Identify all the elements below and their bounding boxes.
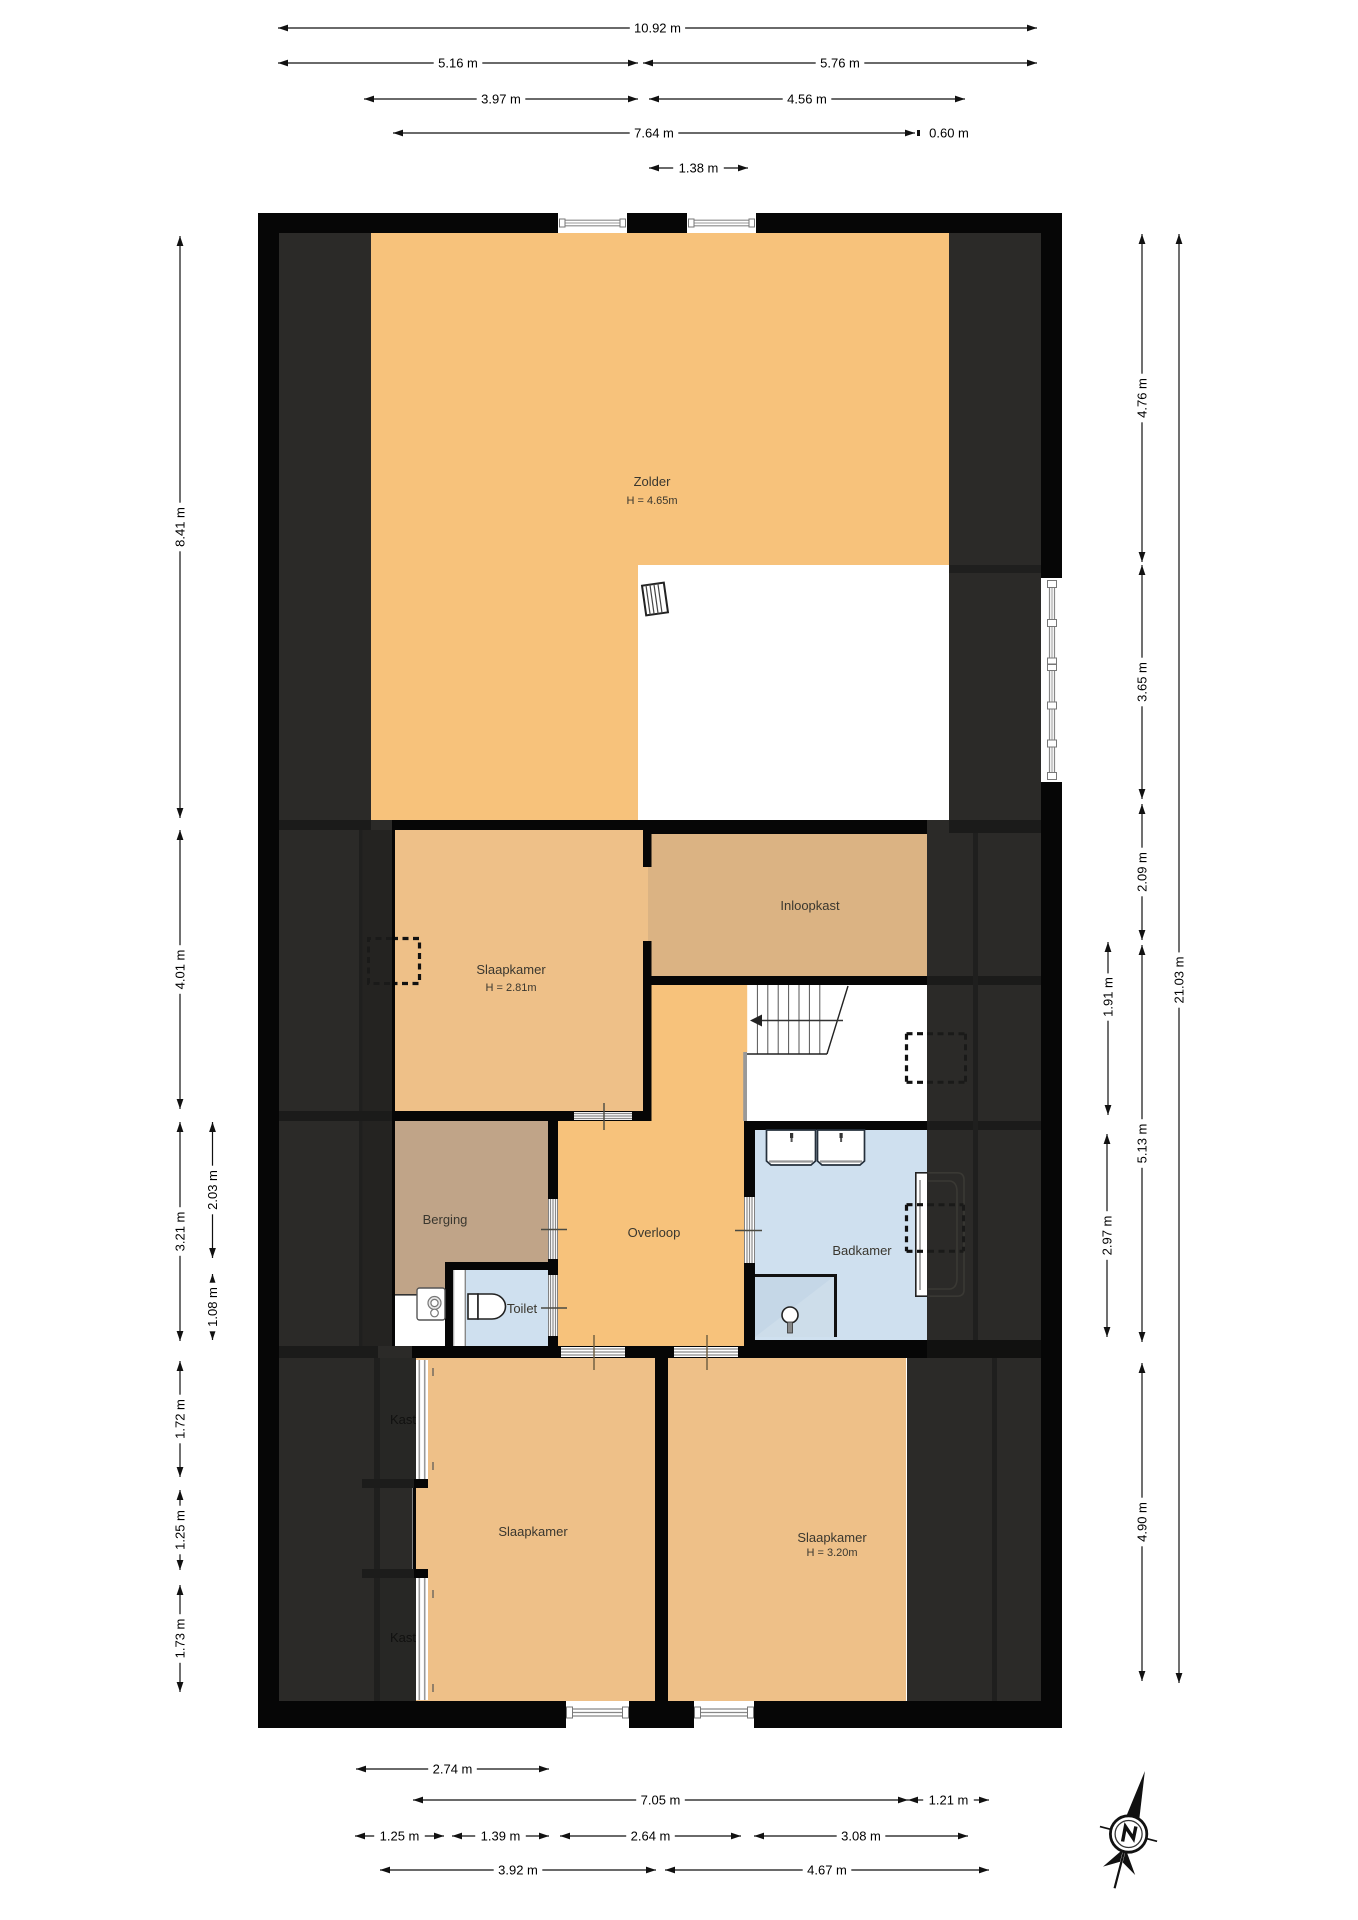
svg-text:H = 2.81m: H = 2.81m (485, 982, 536, 994)
svg-text:10.92 m: 10.92 m (634, 21, 681, 36)
svg-text:Toilet: Toilet (507, 1301, 538, 1316)
svg-text:Kast: Kast (390, 1630, 416, 1645)
svg-text:1.25 m: 1.25 m (380, 1829, 420, 1844)
svg-text:7.64 m: 7.64 m (634, 126, 674, 141)
svg-text:21.03 m: 21.03 m (1172, 957, 1187, 1004)
svg-text:5.76 m: 5.76 m (820, 56, 860, 71)
svg-text:1.72 m: 1.72 m (173, 1399, 188, 1439)
svg-text:1.25 m: 1.25 m (173, 1510, 188, 1550)
svg-text:2.03 m: 2.03 m (205, 1170, 220, 1210)
svg-text:8.41 m: 8.41 m (173, 507, 188, 547)
svg-text:Berging: Berging (423, 1212, 468, 1227)
svg-text:1.08 m: 1.08 m (205, 1287, 220, 1327)
svg-text:1.73 m: 1.73 m (173, 1619, 188, 1659)
svg-text:Inloopkast: Inloopkast (780, 898, 840, 913)
svg-text:3.65 m: 3.65 m (1135, 662, 1150, 702)
svg-text:Slaapkamer: Slaapkamer (476, 962, 546, 977)
svg-text:5.16 m: 5.16 m (438, 56, 478, 71)
svg-text:0.60 m: 0.60 m (929, 126, 969, 141)
svg-text:Zolder: Zolder (634, 474, 672, 489)
svg-text:2.64 m: 2.64 m (631, 1829, 671, 1844)
svg-text:Badkamer: Badkamer (832, 1243, 892, 1258)
svg-text:1.21 m: 1.21 m (929, 1793, 969, 1808)
svg-text:3.21 m: 3.21 m (173, 1212, 188, 1252)
svg-text:1.91 m: 1.91 m (1101, 977, 1116, 1017)
svg-text:4.90 m: 4.90 m (1135, 1502, 1150, 1542)
svg-text:H = 4.65m: H = 4.65m (626, 495, 677, 507)
svg-text:7.05 m: 7.05 m (641, 1793, 681, 1808)
svg-text:4.76 m: 4.76 m (1135, 378, 1150, 418)
svg-text:5.13 m: 5.13 m (1135, 1124, 1150, 1164)
svg-text:3.97 m: 3.97 m (481, 92, 521, 107)
svg-text:Slaapkamer: Slaapkamer (797, 1530, 867, 1545)
svg-text:1.39 m: 1.39 m (481, 1829, 521, 1844)
svg-text:4.56 m: 4.56 m (787, 92, 827, 107)
svg-text:4.01 m: 4.01 m (173, 950, 188, 990)
svg-text:3.08 m: 3.08 m (841, 1829, 881, 1844)
svg-text:Kast: Kast (390, 1412, 416, 1427)
svg-text:4.67 m: 4.67 m (807, 1863, 847, 1878)
svg-text:2.09 m: 2.09 m (1135, 852, 1150, 892)
svg-text:3.92 m: 3.92 m (498, 1863, 538, 1878)
svg-text:2.97 m: 2.97 m (1100, 1216, 1115, 1256)
svg-text:Overloop: Overloop (628, 1225, 681, 1240)
svg-text:1.38 m: 1.38 m (679, 161, 719, 176)
svg-text:2.74 m: 2.74 m (433, 1762, 473, 1777)
svg-text:H = 3.20m: H = 3.20m (806, 1547, 857, 1559)
svg-text:Slaapkamer: Slaapkamer (498, 1524, 568, 1539)
